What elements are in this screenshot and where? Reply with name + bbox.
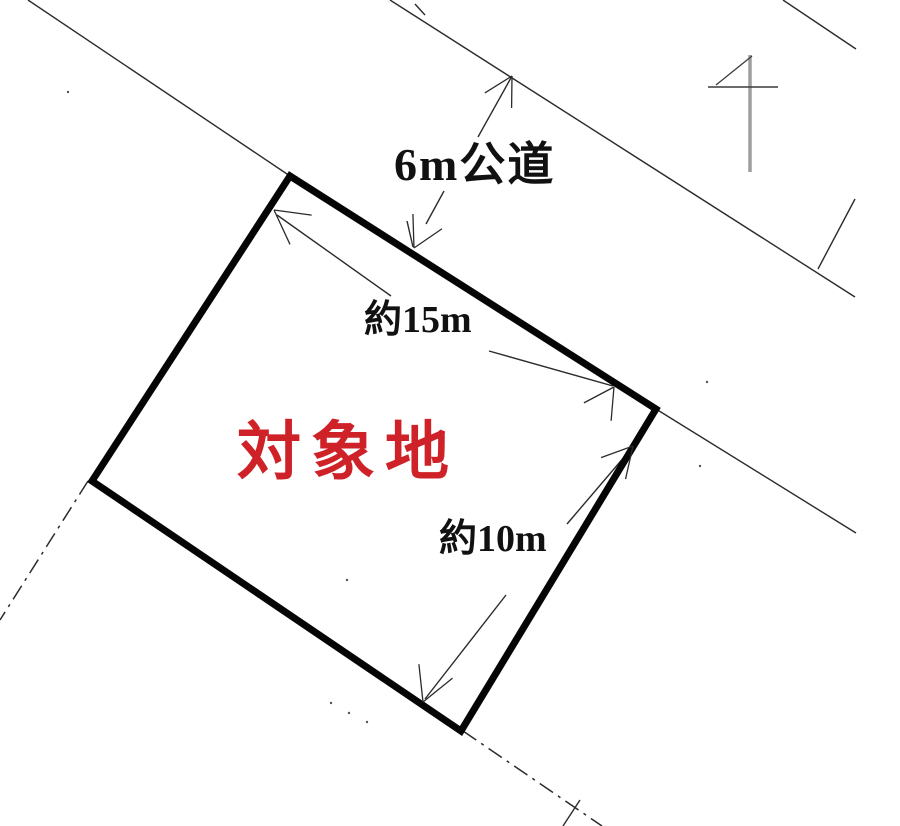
line — [407, 221, 413, 247]
line — [274, 210, 290, 244]
ink-speck — [346, 579, 348, 581]
line — [656, 409, 856, 533]
ink-speck — [330, 702, 332, 704]
site-plan-drawing — [0, 0, 900, 826]
line — [463, 731, 602, 826]
line — [783, 0, 856, 49]
line — [414, 229, 442, 248]
north-symbol — [708, 55, 778, 172]
line — [419, 664, 423, 702]
line — [563, 800, 580, 826]
line — [818, 199, 855, 269]
boundary-lines — [28, 0, 856, 826]
road-label: 6m公道 — [394, 142, 555, 188]
ink-speck — [366, 721, 368, 723]
ink-speck — [699, 465, 701, 467]
ink-speck — [706, 381, 708, 383]
line — [415, 4, 425, 15]
line — [0, 481, 88, 620]
frontage-dimension-label: 約15m — [364, 301, 472, 339]
line — [28, 0, 290, 176]
line — [611, 387, 614, 421]
line — [274, 210, 312, 215]
line — [413, 214, 414, 248]
line — [716, 56, 752, 85]
ink-speck — [67, 91, 69, 93]
line — [426, 191, 444, 224]
depth-dimension-label: 約10m — [439, 520, 547, 558]
line — [478, 76, 512, 137]
site-plan: 6m公道 約15m 約10m 対象地 — [0, 0, 900, 826]
ink-speck — [348, 712, 350, 714]
line — [584, 387, 614, 403]
subject-parcel-label: 対象地 — [237, 421, 459, 485]
